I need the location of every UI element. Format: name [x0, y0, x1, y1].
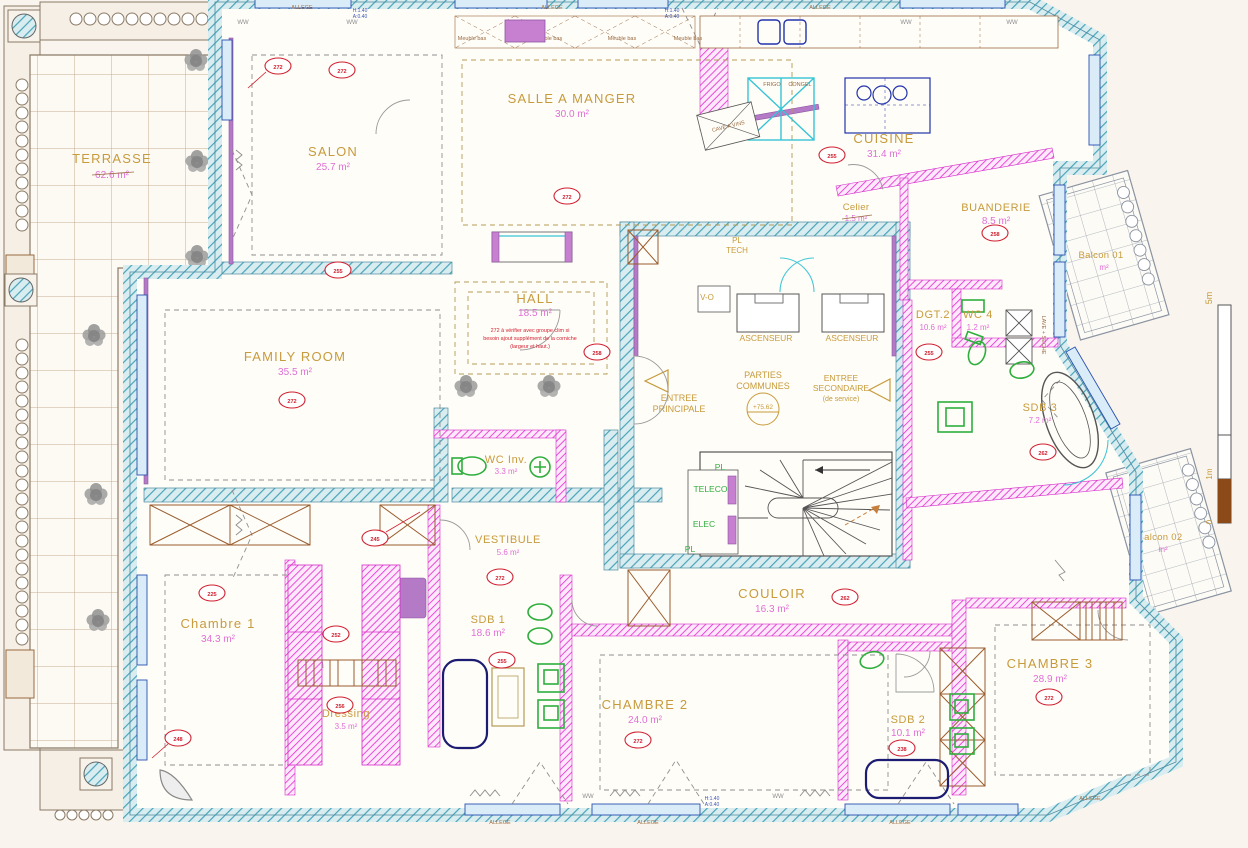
scale-1m: 1m [1205, 468, 1214, 479]
svg-text:FAMILY ROOM: FAMILY ROOM [244, 349, 346, 364]
svg-text:255: 255 [924, 351, 933, 357]
svg-text:ALLEGE: ALLEGE [541, 5, 563, 11]
entree-secondaire-2: SECONDAIRE [813, 383, 870, 393]
level-label: +75.62 [753, 404, 773, 411]
svg-text:31.4 m²: 31.4 m² [867, 149, 902, 160]
svg-text:ALLEGE: ALLEGE [809, 5, 831, 11]
svg-text:16.3 m²: 16.3 m² [755, 604, 790, 615]
svg-text:272: 272 [287, 399, 296, 405]
svg-text:Chambre 1: Chambre 1 [180, 616, 255, 631]
pl-tech-label-1: PL [732, 236, 742, 245]
vo-label: V-O [700, 293, 714, 302]
svg-text:28.9 m²: 28.9 m² [1033, 674, 1068, 685]
svg-text:Meuble bas: Meuble bas [458, 36, 487, 42]
parties-label-1: PARTIES [744, 370, 782, 380]
svg-text:10.6 m²: 10.6 m² [919, 323, 946, 332]
balcon-02-area: m² [1158, 545, 1168, 554]
svg-text:ALLEGE: ALLEGE [489, 820, 511, 826]
svg-text:272: 272 [562, 195, 571, 201]
svg-text:272 à vérifier avec groupe cli: 272 à vérifier avec groupe clim si [491, 328, 570, 334]
frigo-label: FRIGO [763, 82, 781, 88]
pl-tech-label-2: TECH [726, 246, 748, 255]
svg-text:DGT.2: DGT.2 [916, 309, 950, 321]
svg-text:272: 272 [1044, 696, 1053, 702]
svg-text:SDB 1: SDB 1 [471, 614, 506, 626]
entree-principale-2: PRINCIPALE [653, 404, 706, 414]
entree-secondaire-1: ENTREE [824, 373, 859, 383]
svg-text:WW: WW [346, 20, 358, 26]
svg-text:256: 256 [335, 704, 344, 710]
svg-text:ALLEGE: ALLEGE [291, 5, 313, 11]
svg-text:WW: WW [772, 794, 784, 800]
svg-text:WW: WW [582, 794, 594, 800]
svg-text:255: 255 [333, 269, 342, 275]
svg-text:SALON: SALON [308, 144, 358, 159]
svg-text:WW: WW [1006, 20, 1018, 26]
svg-text:WW: WW [237, 20, 249, 26]
svg-text:A:0.40: A:0.40 [665, 14, 680, 20]
svg-text:272: 272 [633, 739, 642, 745]
pl-label-1: PL [715, 462, 726, 472]
parties-label-2: COMMUNES [736, 381, 790, 391]
pl-label-2: PL [685, 544, 696, 554]
svg-text:18.5 m²: 18.5 m² [518, 308, 553, 319]
svg-text:255: 255 [497, 659, 506, 665]
svg-text:ALLEGE: ALLEGE [1079, 796, 1101, 802]
svg-text:262: 262 [840, 596, 849, 602]
elec-label: ELEC [693, 519, 715, 529]
svg-text:255: 255 [827, 154, 836, 160]
balcon-01-area: m² [1099, 263, 1109, 272]
svg-text:5.6 m²: 5.6 m² [497, 548, 520, 557]
svg-text:besoin ajout supplément de la: besoin ajout supplément de la corniche [483, 336, 577, 342]
svg-text:SDB 3: SDB 3 [1023, 402, 1058, 414]
svg-text:225: 225 [207, 592, 216, 598]
svg-text:272: 272 [337, 69, 346, 75]
svg-text:CHAMBRE 2: CHAMBRE 2 [602, 697, 689, 712]
svg-text:Celier: Celier [843, 202, 870, 213]
svg-text:ALLEGE: ALLEGE [889, 820, 911, 826]
floor-plan: TERRASSE 62.6 m² Balcon 01 m² Balcon 02 … [0, 0, 1248, 848]
lave-seche-label: LAVE + SECHE [1040, 316, 1046, 355]
balcon-02-label: Balcon 02 [1138, 532, 1183, 543]
svg-text:(largeur et haut.): (largeur et haut.) [510, 344, 550, 350]
svg-text:18.6 m²: 18.6 m² [471, 628, 506, 639]
scale-5m: 5m [1204, 292, 1214, 305]
svg-text:WC Inv.: WC Inv. [485, 454, 528, 466]
congel-label: CONGEL [788, 82, 811, 88]
svg-text:BUANDERIE: BUANDERIE [961, 202, 1031, 214]
svg-text:CUISINE: CUISINE [853, 131, 914, 146]
svg-text:Meuble bas: Meuble bas [608, 36, 637, 42]
svg-text:272: 272 [495, 576, 504, 582]
svg-text:ALLEGE: ALLEGE [637, 820, 659, 826]
svg-text:VESTIBULE: VESTIBULE [475, 534, 541, 546]
svg-text:252: 252 [331, 633, 340, 639]
svg-text:SDB 2: SDB 2 [891, 714, 926, 726]
svg-text:Meuble bas: Meuble bas [674, 36, 703, 42]
balcon-01-label: Balcon 01 [1079, 250, 1124, 261]
svg-text:25.7 m²: 25.7 m² [316, 162, 351, 173]
svg-text:248: 248 [173, 737, 182, 743]
svg-text:WW: WW [900, 20, 912, 26]
svg-text:1.2 m²: 1.2 m² [967, 323, 990, 332]
room-label-terrasse: TERRASSE [72, 151, 152, 166]
svg-text:3.3 m²: 3.3 m² [495, 467, 518, 476]
ascenseur-1-label: ASCENSEUR [740, 333, 793, 343]
svg-text:258: 258 [592, 351, 601, 357]
svg-text:238: 238 [897, 747, 906, 753]
svg-text:245: 245 [370, 537, 379, 543]
svg-text:30.0 m²: 30.0 m² [555, 109, 590, 120]
svg-text:7.2 m²: 7.2 m² [1029, 416, 1052, 425]
svg-text:24.0 m²: 24.0 m² [628, 715, 663, 726]
svg-text:258: 258 [990, 232, 999, 238]
svg-text:WC 4: WC 4 [963, 309, 993, 321]
svg-text:3.5 m²: 3.5 m² [335, 722, 358, 731]
svg-text:35.5 m²: 35.5 m² [278, 367, 313, 378]
svg-text:10.1 m²: 10.1 m² [891, 728, 926, 739]
entree-secondaire-3: (de service) [823, 396, 860, 403]
svg-text:SALLE A MANGER: SALLE A MANGER [508, 91, 637, 106]
ascenseur-2-label: ASCENSEUR [826, 333, 879, 343]
room-area-terrasse: 62.6 m² [95, 170, 130, 181]
svg-text:34.3 m²: 34.3 m² [201, 634, 236, 645]
svg-text:262: 262 [1038, 451, 1047, 457]
scale-0: 0 [1205, 519, 1214, 524]
svg-text:CHAMBRE 3: CHAMBRE 3 [1007, 656, 1094, 671]
svg-text:COULOIR: COULOIR [738, 586, 806, 601]
svg-text:A:0.40: A:0.40 [705, 802, 720, 808]
svg-text:HALL: HALL [516, 291, 553, 306]
svg-text:272: 272 [273, 65, 282, 71]
